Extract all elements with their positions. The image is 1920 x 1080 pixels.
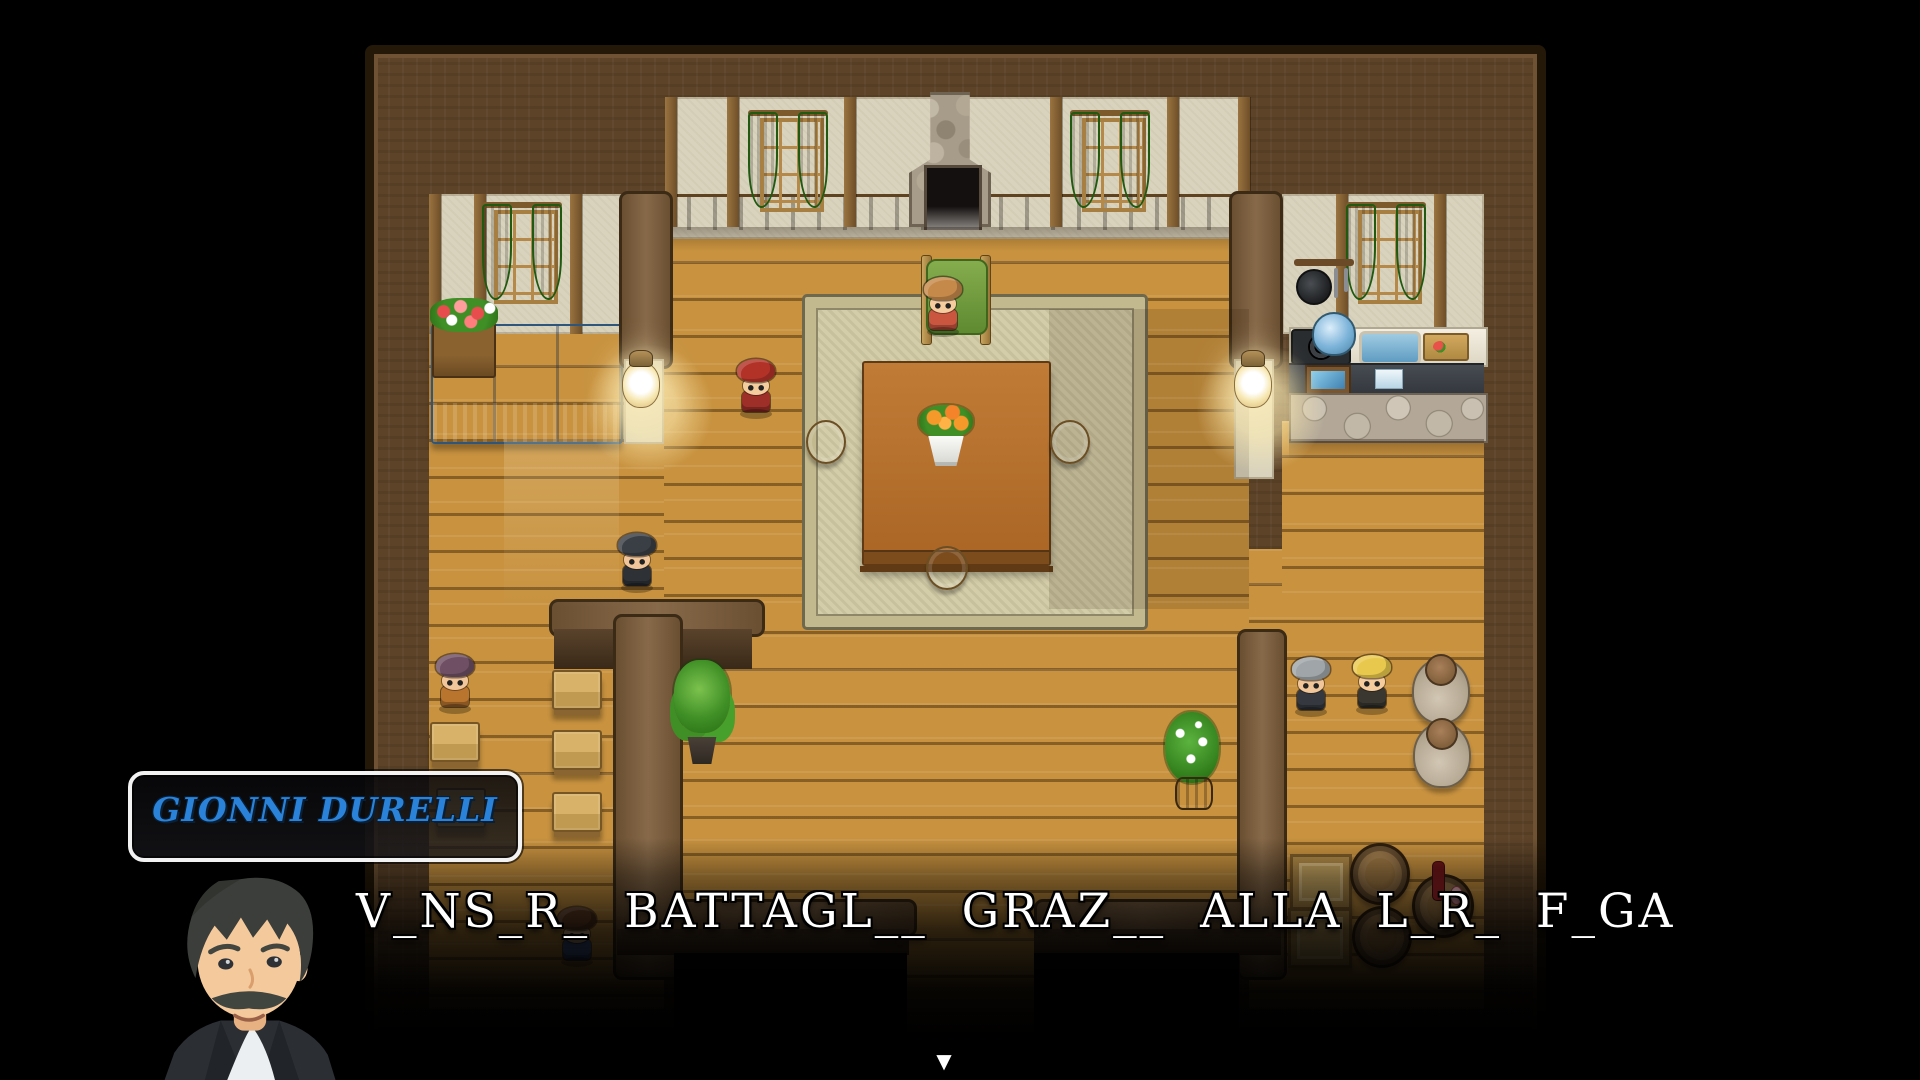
wall-post: [1050, 97, 1062, 227]
kitchen-shadow: [1289, 439, 1484, 459]
wall-post: [1434, 194, 1446, 334]
npc-hair: [436, 654, 474, 677]
wall-post: [1167, 97, 1179, 227]
continue-indicator[interactable]: ▼: [925, 1048, 963, 1074]
left-wing-window: [476, 204, 568, 304]
curtain-right: [1120, 112, 1150, 208]
speaker-name: GIONNI DURELLI: [132, 790, 518, 829]
speaker-portrait: [148, 856, 350, 1080]
npc-hair: [924, 277, 962, 300]
upper-right-window: [1064, 112, 1156, 212]
bench: [552, 792, 602, 832]
red-flower-box: [432, 322, 496, 378]
wall-post: [570, 194, 582, 334]
npc-purple-haired-villager: [433, 653, 477, 711]
hand-towel: [1375, 369, 1403, 389]
npc-dark-haired-man: [615, 532, 659, 590]
bench: [430, 722, 480, 762]
cutting-board: [1423, 333, 1469, 361]
upper-left-window: [742, 112, 834, 212]
window-light: [504, 439, 619, 609]
jar: [1412, 658, 1470, 724]
frying-pan: [1296, 269, 1332, 305]
portrait-gionni-durelli: [148, 856, 350, 1080]
lamp: [1234, 350, 1270, 408]
bench: [552, 670, 602, 710]
left-pillar: [619, 191, 673, 369]
curtain-right: [1396, 204, 1426, 300]
rack-bar: [1294, 259, 1354, 266]
dark-opening-left: [674, 953, 907, 1035]
game-viewport[interactable]: GIONNI DURELLI V_NS_R_ BATTAGL__ GRAZ__ …: [0, 0, 1920, 1080]
npc-red-armored-knight: [734, 358, 778, 416]
npc-seated-villager-girl: [921, 276, 965, 334]
fireplace-hearth: [924, 165, 982, 230]
npc-hair: [618, 533, 656, 556]
kettle: [1312, 312, 1356, 356]
stool: [926, 546, 968, 590]
utensil: [1344, 268, 1348, 292]
plant-tree: [672, 660, 732, 764]
npc-hair: [737, 359, 775, 382]
npc-gray-haired-gentleman: [1289, 656, 1333, 714]
utensil: [1334, 268, 1338, 298]
curtain-right: [798, 112, 828, 208]
npc-blond-adventurer: [1350, 654, 1394, 712]
bench: [552, 730, 602, 770]
dark-opening-right: [1034, 953, 1239, 1035]
lamp: [622, 350, 658, 408]
npc-hair: [1353, 655, 1391, 678]
speaker-name-box: GIONNI DURELLI: [128, 771, 522, 862]
jar: [1413, 722, 1471, 788]
stool: [1050, 420, 1090, 464]
flowerpot: [922, 408, 970, 466]
plant-flower: [1164, 712, 1220, 810]
sink: [1359, 331, 1421, 365]
wall-shadow: [665, 227, 1250, 251]
stool: [806, 420, 846, 464]
curtain-right: [532, 204, 562, 300]
wall-post: [844, 97, 856, 227]
dialogue-text: V_NS_R_ BATTAGL__ GRAZ__ ALLA L_R_ F_GA: [356, 884, 1696, 939]
wall-post: [727, 97, 739, 227]
npc-hair: [1292, 657, 1330, 680]
